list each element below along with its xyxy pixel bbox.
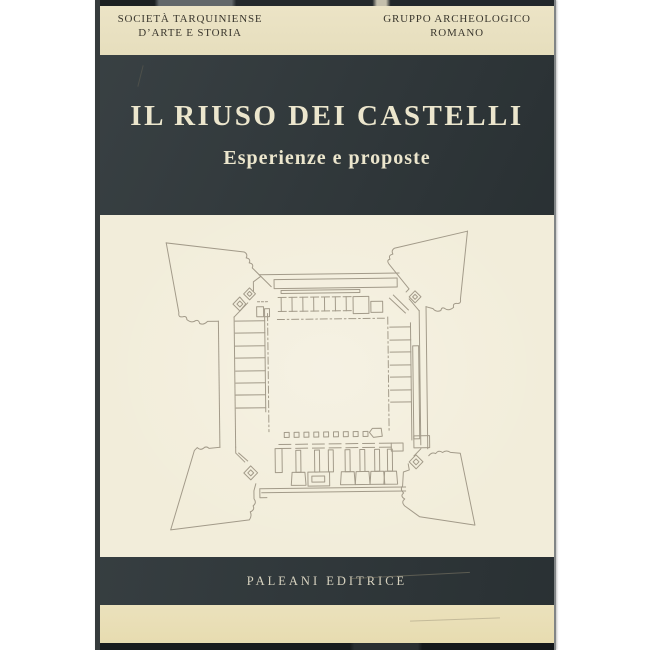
scratch-mark [410, 617, 500, 621]
corner-diamond-detail [409, 455, 423, 469]
society-name-left: SOCIETÀ TARQUINIENSE D’ARTE E STORIA [100, 13, 280, 40]
society-name-left-line1: SOCIETÀ TARQUINIENSE [100, 13, 280, 27]
corner-diamond-detail [244, 466, 258, 480]
society-name-right: GRUPPO ARCHEOLOGICO ROMANO [367, 13, 547, 40]
west-range-rooms [235, 317, 266, 412]
society-name-right-line2: ROMANO [367, 27, 547, 41]
society-name-right-line1: GRUPPO ARCHEOLOGICO [367, 13, 547, 27]
east-range-rooms [390, 323, 430, 451]
header-band: SOCIETÀ TARQUINIENSE D’ARTE E STORIA GRU… [100, 6, 554, 55]
north-range [256, 273, 399, 317]
south-curtain-wall [260, 487, 406, 498]
south-range-piers [275, 447, 398, 487]
book-cover: SOCIETÀ TARQUINIENSE D’ARTE E STORIA GRU… [95, 0, 556, 650]
fortress-plan-drawing [100, 215, 554, 557]
publisher-name: PALEANI EDITRICE [247, 574, 407, 589]
bottom-blank-band [100, 605, 554, 643]
bastion-northwest [166, 242, 273, 448]
bastion-southeast [401, 448, 475, 526]
scratch-mark [137, 65, 143, 87]
book-title: IL RIUSO DEI CASTELLI [130, 100, 523, 133]
illustration-panel [100, 215, 554, 557]
courtyard-colonnade [284, 428, 382, 438]
corner-diamond-detail [233, 297, 246, 311]
title-panel: IL RIUSO DEI CASTELLI Esperienze e propo… [100, 55, 554, 215]
book-subtitle: Esperienze e proposte [223, 147, 430, 170]
book-bottom-edge [100, 643, 554, 650]
society-name-left-line2: D’ARTE E STORIA [100, 27, 280, 41]
publisher-panel: PALEANI EDITRICE [100, 557, 554, 605]
bastion-southwest [170, 446, 259, 530]
